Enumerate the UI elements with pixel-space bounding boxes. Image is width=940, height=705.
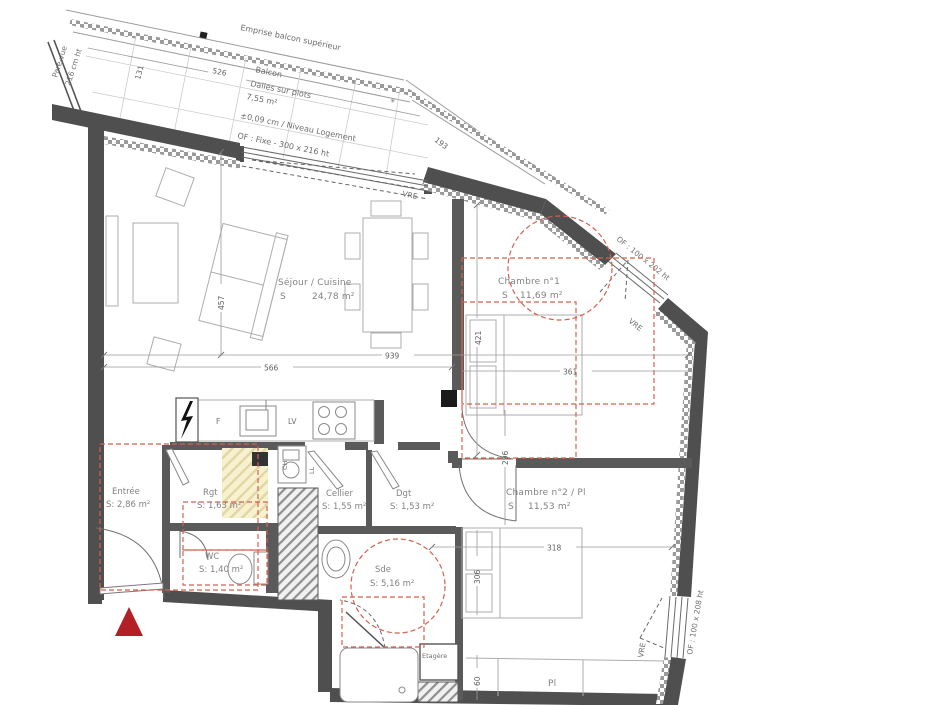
rgt-area: S: 1,63 m² [197, 501, 241, 511]
vre-label-upper: VRE [627, 317, 645, 334]
kitchen-fixtures: F LV [176, 398, 374, 442]
lower-right-window: OF : 100 x 208 ht VRE [636, 589, 705, 658]
dgt-name: Dgt [396, 489, 412, 499]
dim-566: 566 [264, 364, 279, 373]
technical-shaft-hatch [278, 488, 318, 600]
entree-area: S: 2,86 m² [106, 500, 150, 510]
wc-area: S: 1,40 m² [199, 565, 243, 575]
sejour-name: Séjour / Cuisine [278, 277, 352, 288]
level-reference-star-icon: ✳ [390, 97, 396, 105]
chambre1-area: 11,69 m² [520, 291, 563, 301]
wc-door-arc [180, 531, 208, 560]
dim-306: 306 [473, 569, 482, 584]
duct-block [252, 452, 268, 466]
dgt-area: S: 1,53 m² [390, 502, 434, 512]
sde-duct-hatch [418, 682, 458, 702]
chambre1-furniture [466, 315, 582, 415]
sde-name: Sde [375, 565, 391, 575]
dim-421: 421 [474, 330, 483, 345]
cellier-area: S: 1,55 m² [322, 502, 366, 512]
entrance-door-leaf [100, 583, 163, 594]
chambre2-furniture [462, 528, 664, 696]
floor-plan-canvas: ✳ Emprise balcon supérieur Pare-vue 216 … [0, 0, 940, 705]
chambre1-name: Chambre n°1 [498, 277, 560, 287]
sejour-s: S [280, 292, 286, 302]
dim-939: 939 [385, 352, 400, 361]
vre-label-bay: VRE [402, 189, 419, 201]
rgt-name: Rgt [203, 488, 218, 498]
balcony-area: 7,55 m² [246, 92, 279, 107]
dim-457: 457 [217, 295, 226, 310]
etagere-niche [420, 644, 458, 680]
balcony: ✳ Emprise balcon supérieur Pare-vue 216 … [48, 10, 607, 212]
chambre1-s: S [502, 291, 508, 301]
chambre2-s: S [508, 502, 514, 512]
vre-label-lower: VRE [636, 642, 648, 659]
entrance-marker [115, 607, 143, 636]
fridge-label: F [216, 417, 220, 426]
chambre2-name: Chambre n°2 / Pl [506, 488, 586, 498]
water-heater-label: CH [281, 460, 289, 470]
washer-label: LL [308, 466, 316, 474]
pl-label: Pl [548, 679, 556, 689]
shower-tray [340, 648, 418, 702]
cellier-name: Cellier [326, 489, 353, 499]
sofa [198, 220, 288, 341]
sde-door-leaf [346, 612, 385, 648]
emprise-label: Emprise balcon supérieur [240, 22, 343, 52]
entree-name: Entrée [112, 486, 140, 497]
dim-526: 526 [212, 66, 228, 78]
dining-table [345, 201, 428, 348]
dim-60: 60 [473, 676, 482, 686]
etagere-label: Etagère [422, 652, 447, 660]
pocket-door-wall [441, 390, 457, 407]
chambre2-area: 11,53 m² [528, 502, 571, 512]
wc-name: WC [205, 552, 219, 562]
dishwasher-label: LV [288, 417, 297, 426]
bay-window: VRE [242, 147, 428, 201]
sejour-area: 24,78 m² [312, 292, 355, 302]
dim-131: 131 [133, 64, 145, 80]
dim-361: 361 [563, 368, 578, 377]
dgt-door-leaf [371, 451, 399, 489]
dim-193: 193 [433, 135, 450, 151]
dim-296: 296 [501, 450, 510, 465]
room-labels: Séjour / Cuisine S 24,78 m² Chambre n°1 … [106, 277, 586, 689]
cooktop [313, 402, 355, 439]
floor-plan-page: ✳ Emprise balcon supérieur Pare-vue 216 … [0, 0, 940, 705]
sde-area: S: 5,16 m² [370, 579, 414, 589]
dim-318: 318 [547, 544, 562, 553]
sejour-furniture [106, 168, 428, 371]
